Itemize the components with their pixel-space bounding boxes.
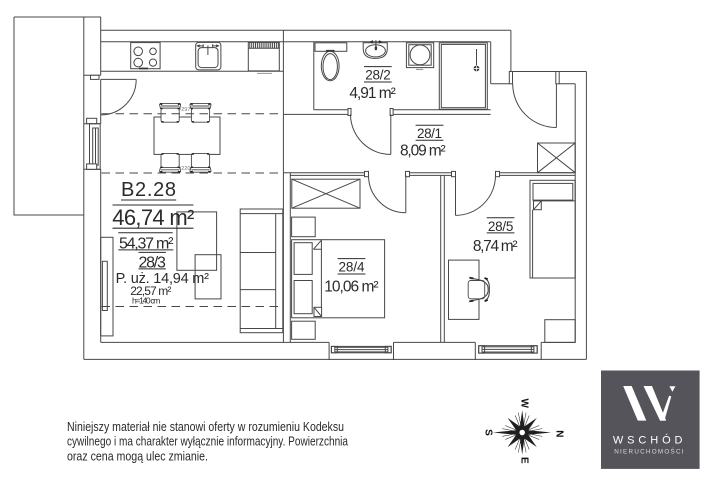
svg-text:46,74 m²: 46,74 m² — [112, 205, 194, 230]
svg-text:10,06 m²: 10,06 m² — [324, 279, 378, 296]
svg-text:28/5: 28/5 — [488, 219, 513, 234]
svg-text:N: N — [554, 430, 565, 437]
svg-text:28/2: 28/2 — [365, 67, 391, 82]
svg-text:E: E — [518, 457, 529, 464]
svg-text:B2.28: B2.28 — [121, 179, 176, 201]
svg-text:Niniejszy materiał nie stanowi: Niniejszy materiał nie stanowi oferty w … — [67, 419, 344, 434]
svg-text:28/4: 28/4 — [339, 259, 365, 274]
svg-text:W: W — [519, 398, 530, 408]
svg-text:28/1: 28/1 — [417, 126, 442, 141]
svg-text:4,91 m²: 4,91 m² — [349, 85, 396, 102]
svg-text:8,09 m²: 8,09 m² — [400, 143, 446, 160]
svg-text:oraz cena mogą ulec zmianie.: oraz cena mogą ulec zmianie. — [67, 448, 208, 463]
svg-text:WSCHÓD: WSCHÓD — [613, 433, 687, 446]
svg-text:S: S — [483, 429, 494, 436]
svg-text:cywilnego i ma charakter wyłąc: cywilnego i ma charakter wyłącznie infor… — [67, 434, 349, 449]
svg-text:NIERUCHOMOŚCI: NIERUCHOMOŚCI — [614, 447, 686, 456]
svg-text:h=140 cm: h=140 cm — [132, 295, 160, 305]
svg-text:8,74 m²: 8,74 m² — [473, 238, 518, 255]
